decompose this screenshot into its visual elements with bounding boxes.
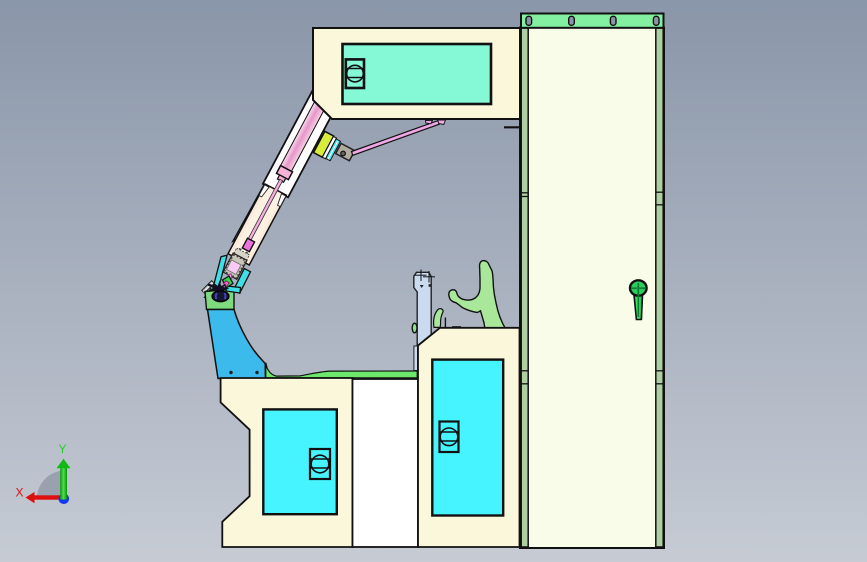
svg-text:Y: Y xyxy=(59,442,67,456)
svg-text:X: X xyxy=(16,486,24,500)
